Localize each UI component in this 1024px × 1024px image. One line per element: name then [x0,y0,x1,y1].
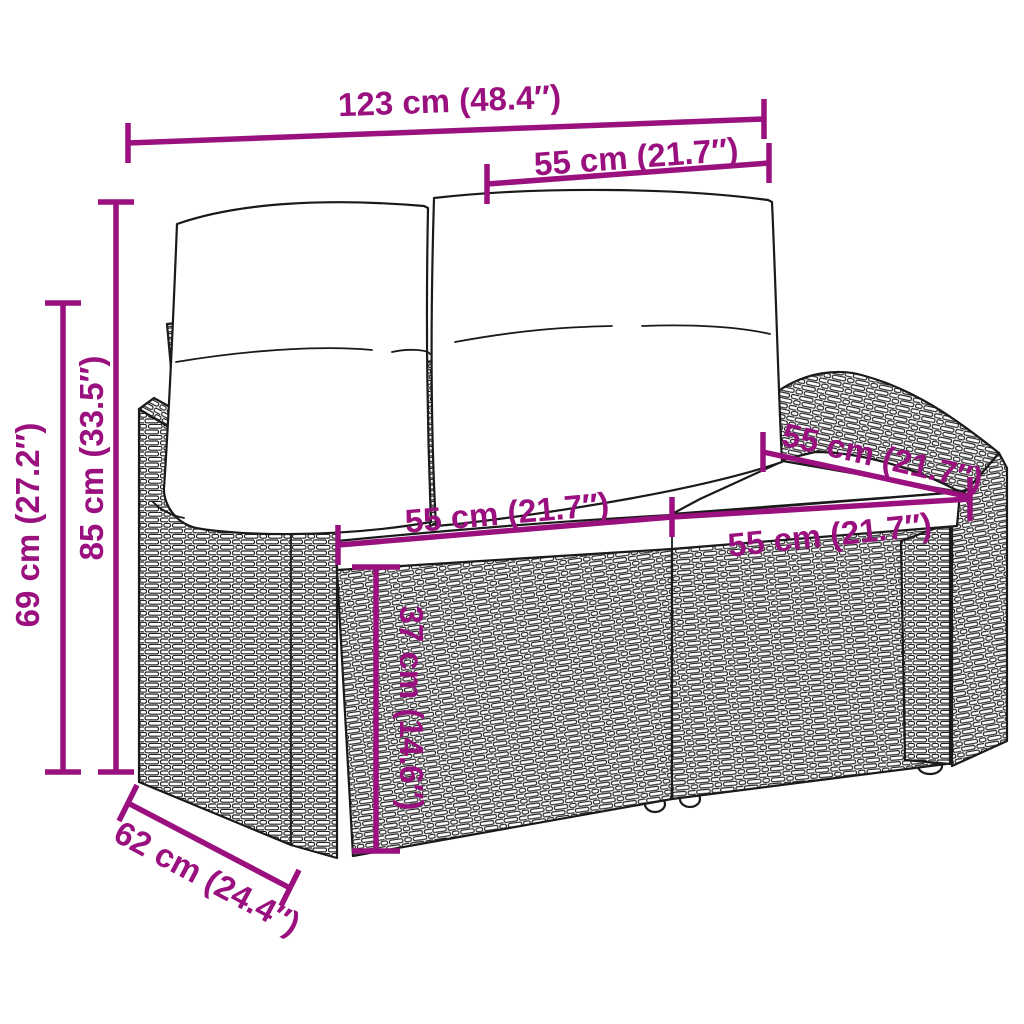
diagram-canvas: 123 cm (48.4″) 55 cm (21.7″) 85 cm (33.5… [0,0,1024,1024]
sofa-front-right-post [901,523,950,764]
back-pillow-left [164,202,431,534]
dim-overall-height: 85 cm (33.5″) [73,202,134,772]
dim-backrest-width-label: 55 cm (21.7″) [533,130,740,182]
product-dimension-diagram: 123 cm (48.4″) 55 cm (21.7″) 85 cm (33.5… [0,0,1024,1024]
dim-overall-height-label: 85 cm (33.5″) [73,356,110,561]
dim-armrest-height: 69 cm (27.2″) [9,303,81,772]
sofa-base-front-left [337,547,672,856]
dim-seat-height-label: 37 cm (14.6″) [393,606,430,811]
back-pillow-right [432,190,782,526]
dim-overall-width-label: 123 cm (48.4″) [337,78,561,124]
dim-armrest-height-label: 69 cm (27.2″) [9,423,46,628]
